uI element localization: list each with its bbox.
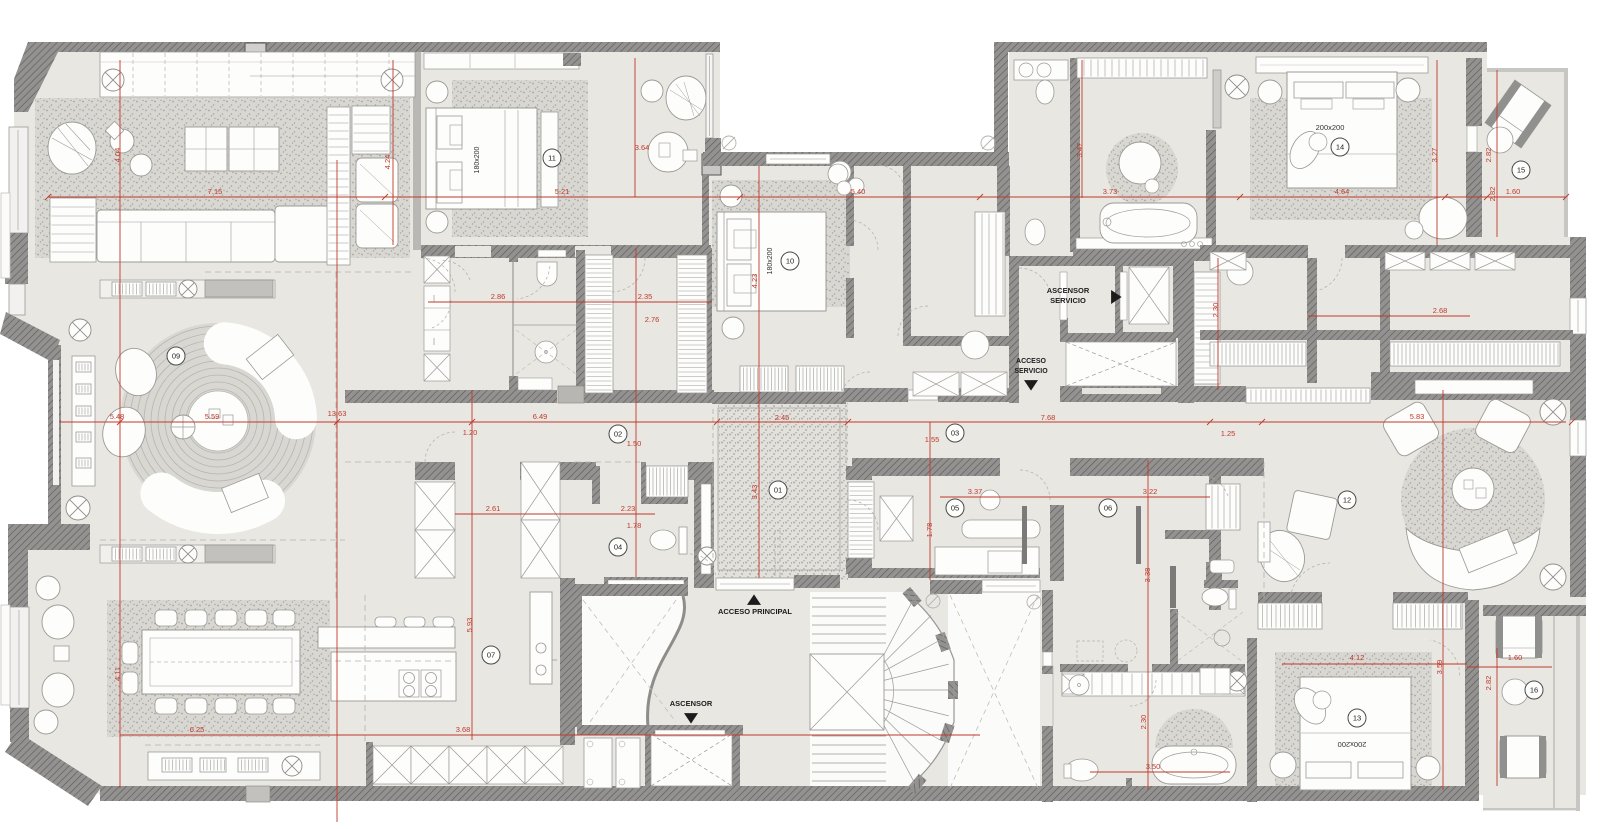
svg-text:4.04: 4.04	[113, 148, 122, 163]
svg-text:7.68: 7.68	[1041, 413, 1056, 422]
svg-text:4.24: 4.24	[383, 155, 392, 170]
svg-text:01: 01	[774, 486, 782, 495]
svg-text:ASCENSOR: ASCENSOR	[670, 699, 713, 708]
svg-text:3.27: 3.27	[1430, 148, 1439, 163]
svg-text:06: 06	[1104, 504, 1112, 513]
svg-text:5.48: 5.48	[110, 412, 125, 421]
svg-text:3.43: 3.43	[750, 485, 759, 500]
svg-text:2.82: 2.82	[1484, 148, 1493, 163]
svg-text:13.63: 13.63	[328, 409, 347, 418]
svg-text:2.82: 2.82	[1484, 676, 1493, 691]
svg-text:2.45: 2.45	[775, 413, 790, 422]
svg-text:3.47: 3.47	[1075, 143, 1084, 158]
svg-text:1.78: 1.78	[925, 523, 934, 538]
svg-text:15: 15	[1517, 166, 1525, 175]
svg-text:5.40: 5.40	[851, 187, 866, 196]
svg-text:3.59: 3.59	[1435, 660, 1444, 675]
svg-text:2.86: 2.86	[491, 292, 506, 301]
svg-text:3.50: 3.50	[1146, 762, 1161, 771]
svg-text:1.60: 1.60	[1508, 653, 1523, 662]
svg-text:SERVICIO: SERVICIO	[1014, 368, 1048, 375]
svg-text:2.68: 2.68	[1433, 306, 1448, 315]
svg-text:3.68: 3.68	[456, 725, 471, 734]
svg-text:1.60: 1.60	[1506, 187, 1521, 196]
svg-text:200x200: 200x200	[1316, 123, 1345, 132]
svg-text:2.30: 2.30	[1139, 715, 1148, 730]
svg-text:180x200: 180x200	[767, 247, 774, 274]
svg-text:16: 16	[1530, 686, 1538, 695]
svg-text:3.73: 3.73	[1103, 187, 1118, 196]
svg-text:14: 14	[1336, 143, 1344, 152]
svg-text:10: 10	[786, 257, 794, 266]
svg-text:5.21: 5.21	[555, 187, 570, 196]
svg-text:SERVICIO: SERVICIO	[1050, 296, 1086, 305]
svg-text:6.49: 6.49	[533, 412, 548, 421]
svg-text:ACCESO: ACCESO	[1016, 358, 1047, 365]
svg-text:6.25: 6.25	[190, 725, 205, 734]
svg-text:4.11: 4.11	[113, 667, 122, 681]
svg-text:1.25: 1.25	[1221, 429, 1236, 438]
svg-text:ASCENSOR: ASCENSOR	[1047, 286, 1090, 295]
svg-text:2.23: 2.23	[621, 504, 636, 513]
svg-text:4.12: 4.12	[1350, 653, 1365, 662]
svg-text:04: 04	[614, 543, 622, 552]
svg-text:4.23: 4.23	[750, 274, 759, 289]
svg-text:3.64: 3.64	[635, 143, 650, 152]
svg-text:1.55: 1.55	[925, 435, 940, 444]
svg-text:2.76: 2.76	[645, 315, 660, 324]
svg-text:180x200: 180x200	[474, 146, 481, 173]
svg-text:200x200: 200x200	[1338, 740, 1367, 749]
svg-text:02: 02	[614, 430, 622, 439]
svg-text:2.61: 2.61	[486, 504, 501, 513]
svg-text:3.22: 3.22	[1143, 487, 1158, 496]
svg-text:7.15: 7.15	[208, 187, 223, 196]
svg-text:07: 07	[487, 651, 495, 660]
svg-text:1.78: 1.78	[627, 521, 642, 530]
svg-text:2.35: 2.35	[638, 292, 653, 301]
svg-text:5.59: 5.59	[205, 412, 220, 421]
svg-text:ACCESO PRINCIPAL: ACCESO PRINCIPAL	[718, 607, 792, 616]
svg-text:3.38: 3.38	[1143, 568, 1152, 583]
svg-text:12: 12	[1343, 496, 1351, 505]
svg-text:03: 03	[951, 429, 959, 438]
svg-text:09: 09	[172, 352, 180, 361]
svg-text:2.82: 2.82	[1488, 187, 1497, 202]
svg-text:2.30: 2.30	[1211, 303, 1220, 318]
svg-text:5.83: 5.83	[1410, 412, 1425, 421]
svg-text:11: 11	[548, 154, 556, 163]
svg-text:4.64: 4.64	[1335, 187, 1350, 196]
svg-text:1.20: 1.20	[463, 428, 478, 437]
svg-text:5.93: 5.93	[465, 618, 474, 633]
svg-text:3.37: 3.37	[968, 487, 983, 496]
svg-text:05: 05	[951, 504, 959, 513]
svg-text:1.50: 1.50	[627, 439, 642, 448]
svg-text:13: 13	[1353, 714, 1361, 723]
